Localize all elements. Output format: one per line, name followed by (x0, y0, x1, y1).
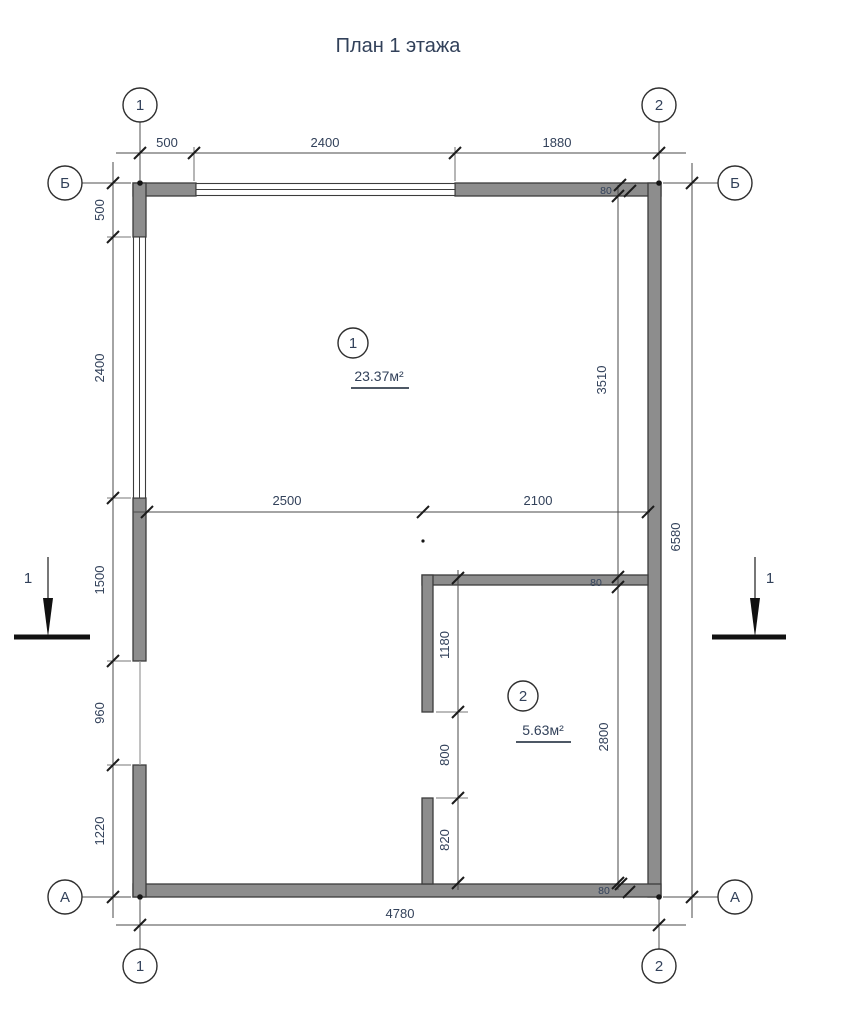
axis-bubble-a-left: А (48, 880, 82, 914)
section-mark-left: 1 (14, 557, 90, 637)
wall-bottom (133, 884, 661, 897)
dimension-right-outer: 6580 (668, 163, 698, 918)
axis-label-a-left: А (60, 889, 70, 906)
wall-left-top-segment (133, 183, 146, 237)
window-left (134, 237, 146, 498)
dim-top-2400: 2400 (311, 135, 340, 150)
dim-right-6580: 6580 (668, 523, 683, 552)
room-label-2: 2 5.63м² (508, 681, 571, 742)
dimension-chain-left: 500 2400 1500 960 1220 (92, 162, 131, 918)
dimension-chain-top: 500 2400 1880 (116, 135, 686, 181)
section-label-left: 1 (24, 570, 32, 587)
dim-right-3510: 3510 (594, 366, 609, 395)
dim-partition-820: 820 (437, 829, 452, 851)
room-1-number: 1 (349, 335, 357, 352)
section-label-right: 1 (766, 570, 774, 587)
dim-left-500: 500 (92, 199, 107, 221)
center-dot (421, 539, 424, 542)
axis-label-a-right: А (730, 889, 740, 906)
dimension-chain-partition: 1180 800 820 (436, 570, 468, 890)
window-top (196, 184, 455, 196)
axis-label-2-bottom: 2 (655, 958, 663, 975)
dim-thickness-80-top: 80 (600, 185, 612, 197)
axis-label-b-left: Б (60, 175, 70, 192)
axis-bubble-2-top: 2 (642, 88, 676, 122)
axis-bubble-1-top: 1 (123, 88, 157, 122)
axis-bubble-b-right: Б (718, 166, 752, 200)
drawing-title: План 1 этажа (336, 35, 462, 57)
axis-leader-lines (82, 122, 718, 949)
dim-middle-2500: 2500 (273, 493, 302, 508)
floor-plan-page: План 1 этажа (0, 0, 846, 1017)
axis-label-1-bottom: 1 (136, 958, 144, 975)
partition-vertical-bottom-segment (422, 798, 433, 884)
dim-middle-2100: 2100 (524, 493, 553, 508)
wall-right (648, 183, 661, 897)
axis-label-b-right: Б (730, 175, 740, 192)
dimension-chain-middle: 2500 2100 (133, 493, 654, 518)
axis-label-2-top: 2 (655, 97, 663, 114)
dim-left-1500: 1500 (92, 566, 107, 595)
dim-top-1880: 1880 (543, 135, 572, 150)
wall-left-middle-segment (133, 498, 146, 661)
section-arrow-left (43, 598, 53, 637)
axis-bubble-a-right: А (718, 880, 752, 914)
floor-plan-canvas: План 1 этажа (0, 0, 846, 1017)
dimension-chain-right-inner: 3510 2800 (594, 185, 624, 890)
dimension-bottom: 4780 (116, 906, 686, 931)
dim-left-960: 960 (92, 702, 107, 724)
room-2-area: 5.63м² (522, 722, 564, 738)
dim-thickness-80-bottom: 80 (598, 885, 610, 897)
wall-left-bottom-segment (133, 765, 146, 897)
dim-partition-800: 800 (437, 744, 452, 766)
section-arrow-right (750, 598, 760, 637)
axis-bubble-b-left: Б (48, 166, 82, 200)
dim-left-1220: 1220 (92, 817, 107, 846)
dim-partition-1180: 1180 (437, 631, 452, 659)
dim-bottom-4780: 4780 (386, 906, 415, 921)
axis-label-1-top: 1 (136, 97, 144, 114)
thickness-callout-partition: 80 (590, 577, 602, 589)
dim-left-2400: 2400 (92, 354, 107, 383)
dim-right-2800: 2800 (596, 723, 611, 752)
dim-thickness-80-middle: 80 (590, 577, 602, 589)
room-1-area: 23.37м² (354, 368, 404, 384)
dim-top-500: 500 (156, 135, 178, 150)
axis-corner-dots (137, 180, 662, 900)
room-label-1: 1 23.37м² (338, 328, 409, 388)
outer-walls (133, 183, 661, 897)
partition-vertical-top-segment (422, 575, 433, 712)
section-mark-right: 1 (712, 557, 786, 637)
room-2-number: 2 (519, 688, 527, 705)
axis-bubble-2-bottom: 2 (642, 949, 676, 983)
axis-bubble-1-bottom: 1 (123, 949, 157, 983)
